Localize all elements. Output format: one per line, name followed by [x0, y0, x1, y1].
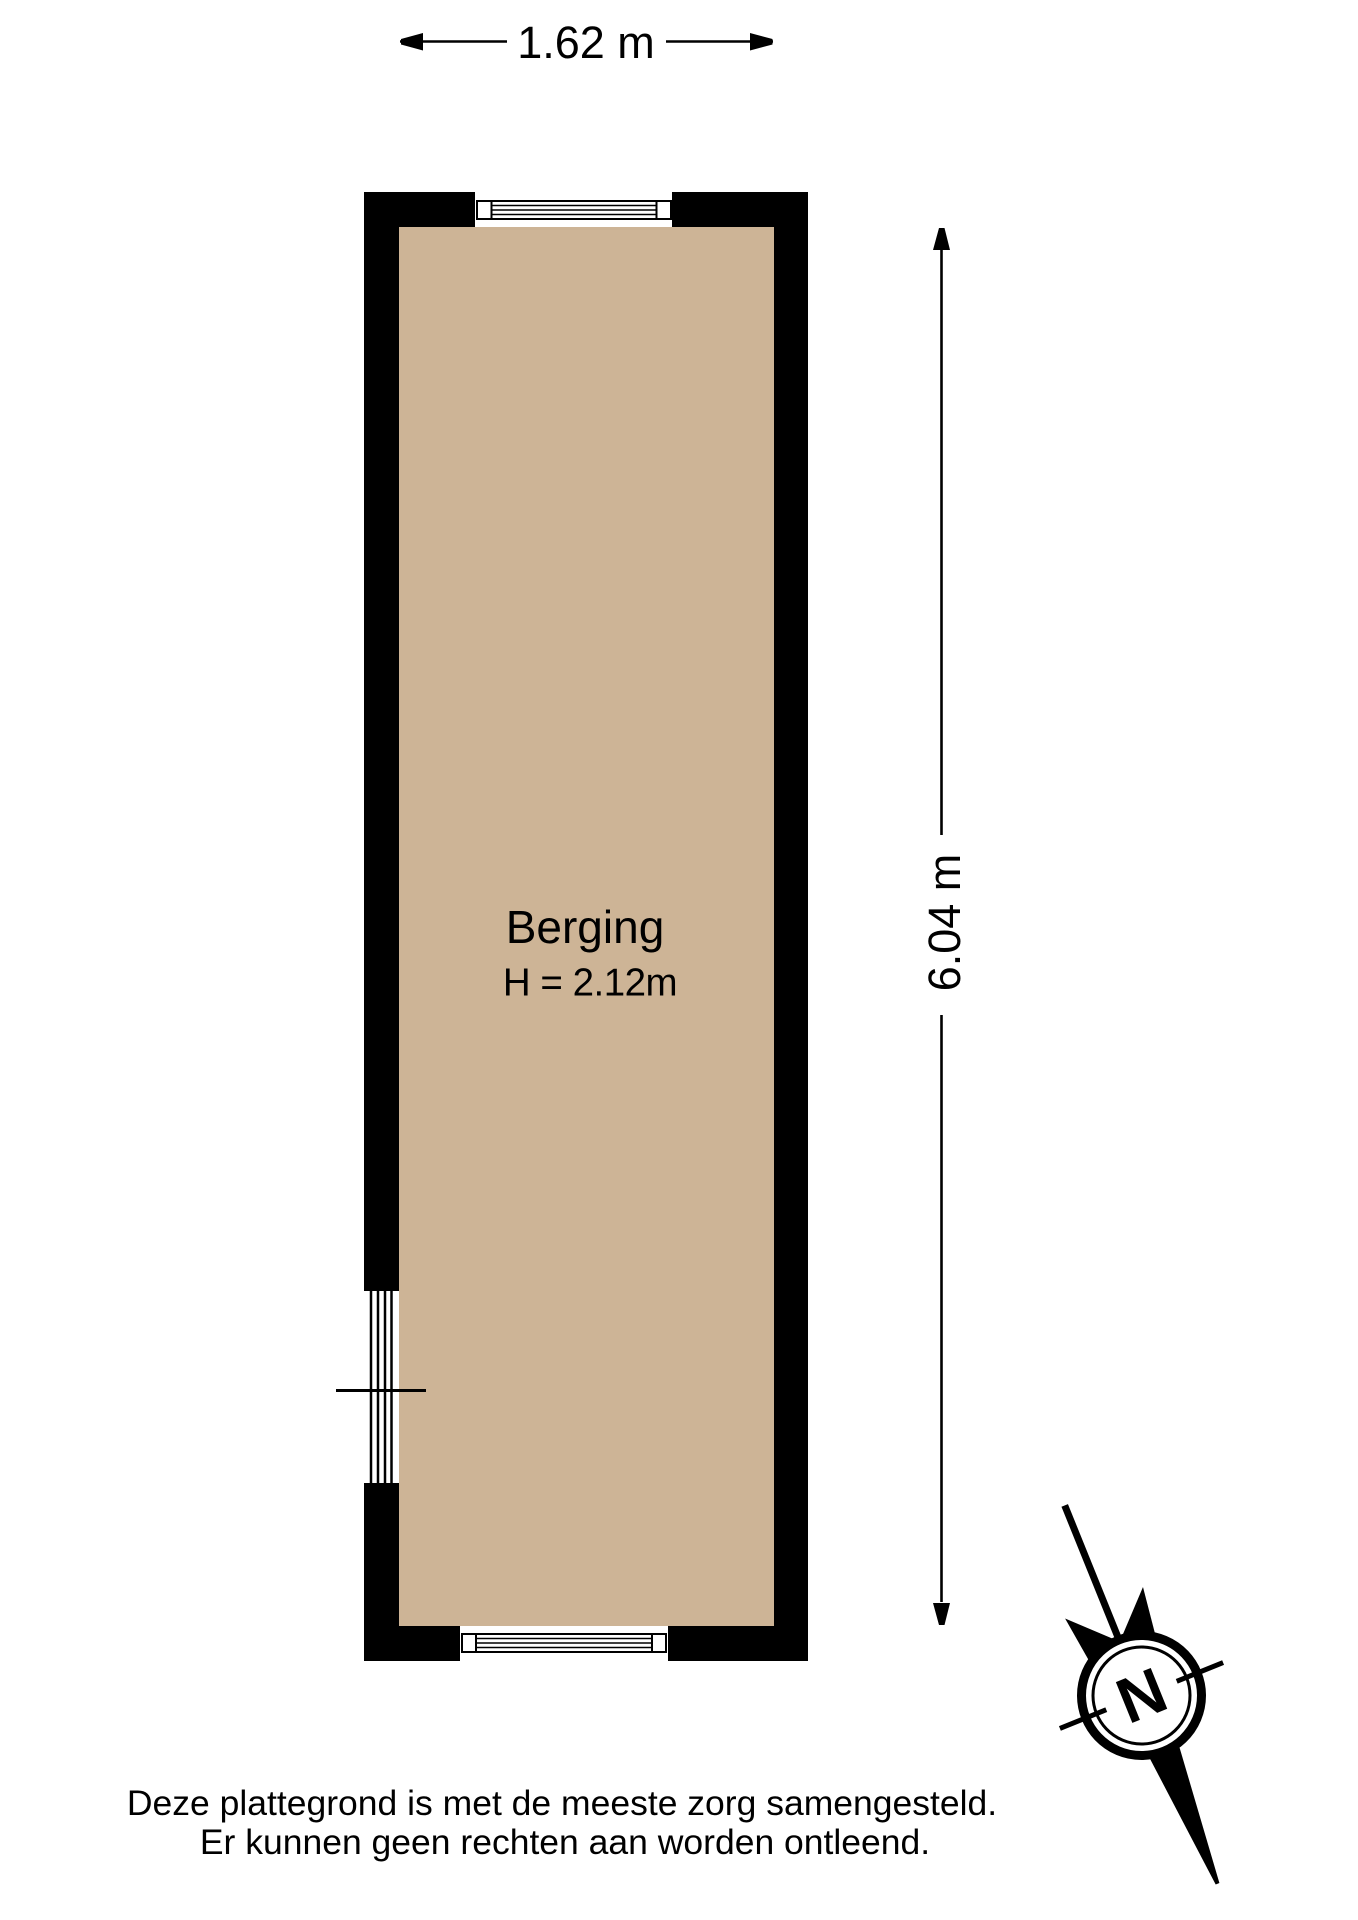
svg-text:1.62 m: 1.62 m — [517, 17, 655, 68]
svg-text:6.04 m: 6.04 m — [919, 854, 970, 992]
svg-text:H = 2.12m: H = 2.12m — [503, 962, 677, 1005]
svg-text:Deze plattegrond is met de mee: Deze plattegrond is met de meeste zorg s… — [127, 1783, 997, 1823]
svg-text:Berging: Berging — [506, 901, 665, 953]
svg-text:Er kunnen geen rechten aan wor: Er kunnen geen rechten aan worden ontlee… — [200, 1822, 930, 1862]
